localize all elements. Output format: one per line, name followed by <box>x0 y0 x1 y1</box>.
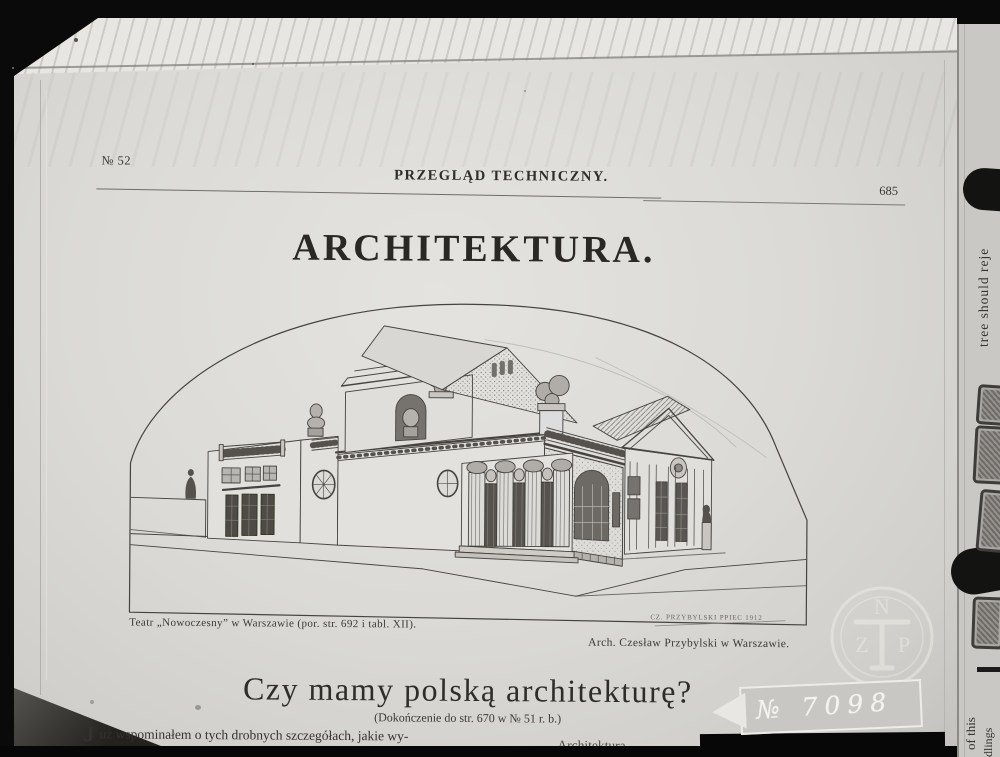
watermark-letter-z: Z <box>855 632 868 657</box>
article-subheading: (Dokończenie do str. 670 w № 51 r. b.) <box>318 710 618 727</box>
edge-dash-mark <box>977 667 1000 672</box>
scanned-journal-photograph: № 52 PRZEGLĄD TECHNICZNY. 685 ARCHITEKTU… <box>0 0 1000 757</box>
header-rule-left <box>96 188 661 198</box>
figure-caption-left: Teatr „Nowoczesny” w Warszawie (por. str… <box>129 617 416 631</box>
edge-text-upper: tree should reje <box>976 248 992 347</box>
body-text-left-column: Już wspominałem o tych drobnych szczegół… <box>83 726 543 745</box>
library-watermark-emblem: N Z P <box>826 584 938 690</box>
archive-number: № 7098 <box>755 686 916 725</box>
watermark-letter-n: N <box>874 594 890 619</box>
edge-stamp-2 <box>973 425 1000 485</box>
page-number: 685 <box>879 184 923 199</box>
artist-signature: CZ. PRZYBYLSKI PPIEC 1912 <box>650 613 762 622</box>
edge-text-lower-1: of this <box>963 717 979 750</box>
figure-caption-right: Arch. Czesław Przybylski w Warszawie. <box>588 637 790 650</box>
edge-text-lower-2: dlings <box>981 728 996 757</box>
edge-stamp-3 <box>975 489 1000 553</box>
theater-drawing <box>120 291 817 631</box>
section-title: ARCHITEKTURA. <box>244 225 704 272</box>
edge-stamp-1 <box>976 384 1000 426</box>
strip-inner-line <box>964 0 965 757</box>
film-edge-bottom <box>0 746 958 757</box>
drop-cap: J <box>83 727 94 741</box>
header-rule-right <box>643 200 905 205</box>
journal-title: PRZEGLĄD TECHNICZNY. <box>301 167 701 187</box>
body-left-line: uż wspominałem o tych drobnych szczegóła… <box>99 726 408 744</box>
watermark-letter-p: P <box>898 632 910 657</box>
strip-top-black <box>957 0 1000 24</box>
archive-number-label: № 7098 <box>739 679 923 735</box>
edge-stamp-4 <box>971 596 1000 649</box>
article-heading: Czy mamy polską architekturę? <box>188 670 748 711</box>
issue-number: № 52 <box>101 153 131 168</box>
